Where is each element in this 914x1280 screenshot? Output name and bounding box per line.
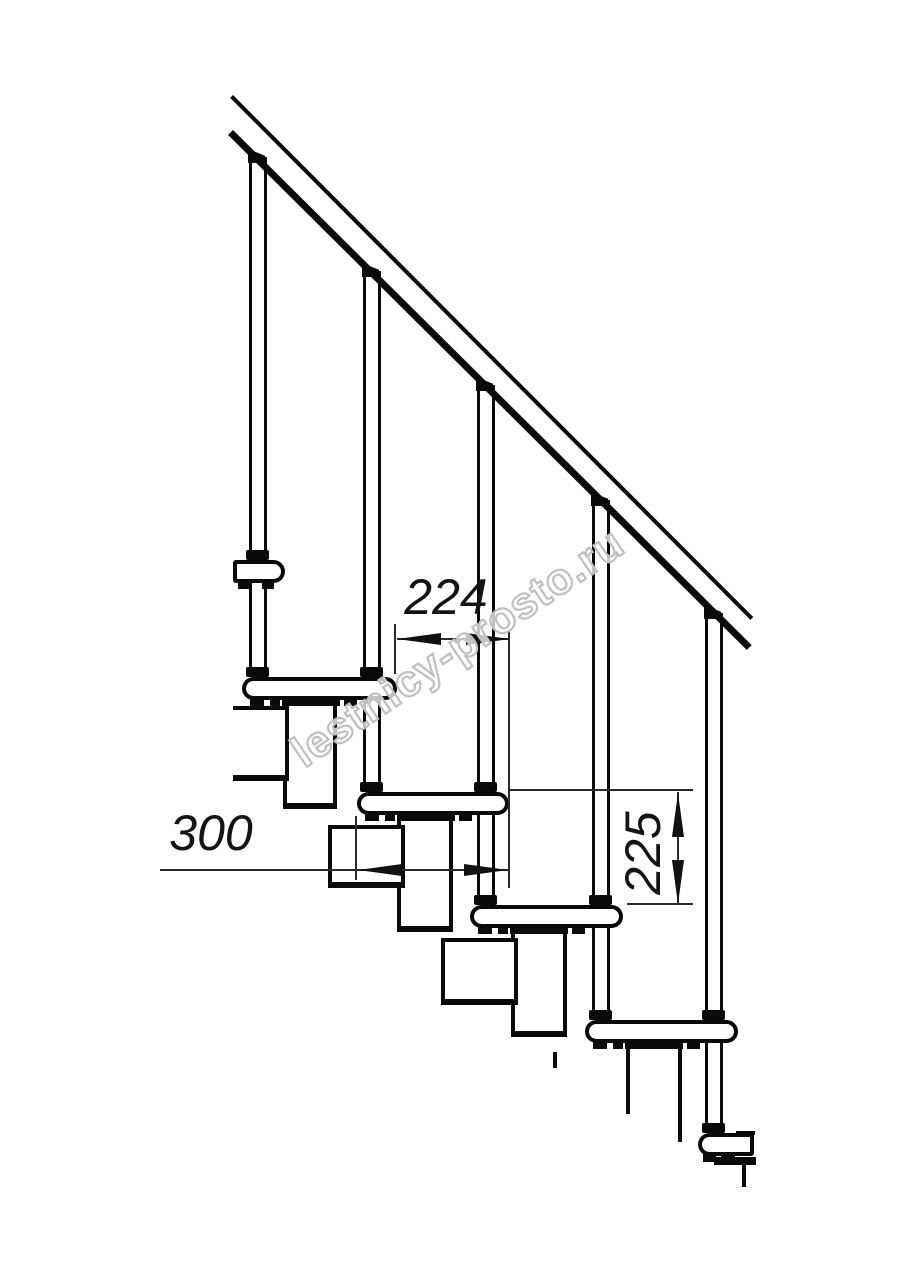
step-foot (385, 813, 395, 821)
baluster-rail-cap (362, 263, 379, 277)
step-mount-plate (397, 813, 455, 821)
step-foot (478, 926, 492, 934)
step-foot (270, 698, 280, 706)
stair-module-box (511, 925, 567, 1037)
arrowhead-left-icon (358, 864, 402, 876)
step-foot (238, 581, 251, 589)
stair-module-edge (626, 1044, 630, 1114)
arrowhead-right-icon (464, 864, 508, 876)
baluster-collar (702, 1010, 725, 1020)
step-foot (613, 1041, 623, 1049)
baluster-collar (246, 667, 269, 677)
step-foot (365, 813, 379, 821)
stair-module-box (397, 812, 453, 932)
step-foot (250, 698, 264, 706)
stair-module-edge (678, 1044, 682, 1142)
extension-line-shared-right (508, 630, 510, 888)
dimension-label-225: 225 (618, 798, 668, 908)
step-tread (233, 560, 285, 583)
baluster-rail-cap (248, 149, 265, 163)
arrowhead-up-icon (672, 793, 684, 837)
step-mount-plate (510, 926, 568, 934)
step-foot (721, 1154, 735, 1162)
extension-line-225-top (510, 789, 693, 791)
baluster-collar (474, 782, 497, 792)
step-foot (572, 926, 585, 934)
step-tread (585, 1020, 738, 1043)
step-foot (262, 581, 274, 589)
stair-module-box (328, 825, 405, 888)
step-tread (470, 905, 623, 928)
baluster-post (249, 157, 267, 677)
stair-module-edge (553, 1052, 557, 1068)
dimension-line-300 (160, 869, 508, 871)
step-foot (703, 1154, 716, 1162)
arrowhead-down-icon (672, 860, 684, 904)
step-tread (357, 792, 509, 815)
step-foot (593, 1041, 607, 1049)
baluster-collar (360, 782, 383, 792)
extension-line-300-left (355, 816, 357, 880)
step-tread (698, 1133, 754, 1156)
stair-module-edge (742, 1164, 746, 1187)
baluster-post (705, 613, 723, 1133)
baluster-collar (246, 550, 269, 560)
baluster-collar (474, 895, 497, 905)
baluster-collar (589, 1010, 612, 1020)
step-foot (498, 926, 508, 934)
dimension-label-300: 300 (161, 808, 261, 858)
baluster-collar (702, 1123, 725, 1133)
stair-module-box (441, 938, 518, 1005)
step-mount-plate (625, 1041, 683, 1049)
extension-line-225-bottom (627, 903, 693, 905)
baluster-collar (589, 895, 612, 905)
step-foot (687, 1041, 700, 1049)
staircase-technical-drawing: 224 300 225 lestnicy-prosto.ru (0, 0, 914, 1280)
step-foot (459, 813, 472, 821)
